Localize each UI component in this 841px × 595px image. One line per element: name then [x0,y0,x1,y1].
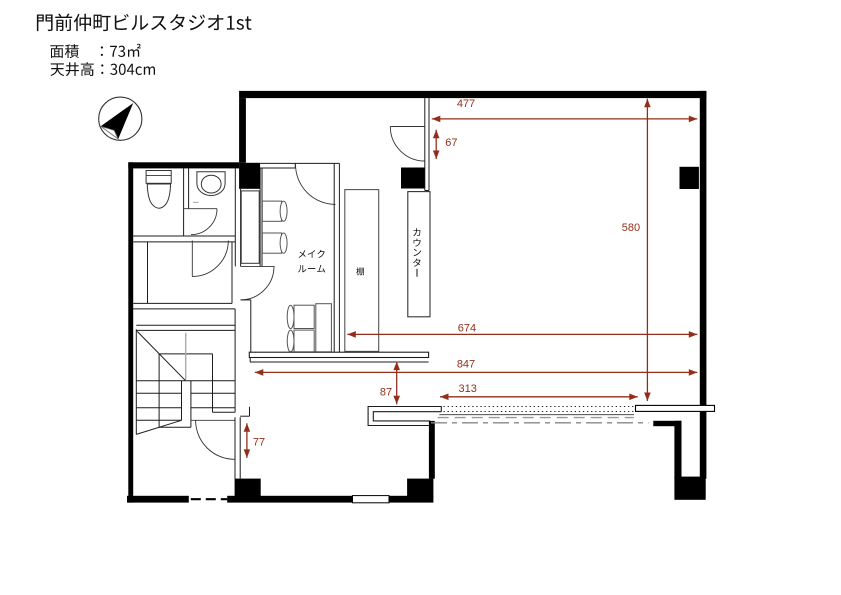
svg-text:674: 674 [458,323,476,335]
svg-text:847: 847 [457,358,475,370]
svg-text:477: 477 [457,98,475,110]
svg-text:580: 580 [622,222,640,234]
svg-text:67: 67 [445,137,457,149]
svg-text:313: 313 [459,383,477,395]
svg-text:77: 77 [253,436,265,448]
svg-text:87: 87 [380,387,392,399]
